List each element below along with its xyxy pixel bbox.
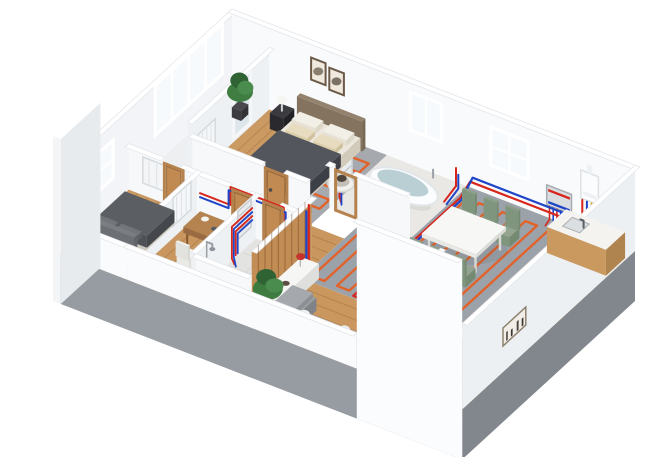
- balcony-plant-leaf-3: [237, 81, 253, 95]
- niche-bottle-1: [522, 317, 524, 327]
- bed-headboard: [362, 119, 365, 152]
- console-flowers-red: [296, 253, 305, 260]
- picture-art-2: [332, 77, 342, 85]
- niche-bottle-3: [511, 328, 513, 337]
- niche-bottle-2: [517, 320, 519, 332]
- niche-bottle-4: [506, 331, 508, 342]
- living-plant-leaf-3: [266, 279, 284, 293]
- pet-sleeping: [337, 175, 347, 182]
- dining-chair-backrest-2: [497, 201, 499, 223]
- isometric-heating-floorplan: [0, 0, 650, 457]
- picture-art-1: [313, 67, 323, 75]
- dining-chair-backrest-1: [475, 193, 477, 215]
- dining-chair-backrest-3: [518, 209, 520, 231]
- shower-head: [209, 247, 215, 251]
- desk-paper: [201, 217, 209, 222]
- dining-chair-frontrest-3: [465, 259, 467, 281]
- bedroom-lamp-shade: [277, 95, 287, 104]
- exterior-wall-stub-left: [53, 136, 61, 304]
- floorplan-render: [0, 0, 650, 457]
- bedroom-door-handle: [269, 188, 273, 192]
- office-chair-back: [188, 245, 190, 261]
